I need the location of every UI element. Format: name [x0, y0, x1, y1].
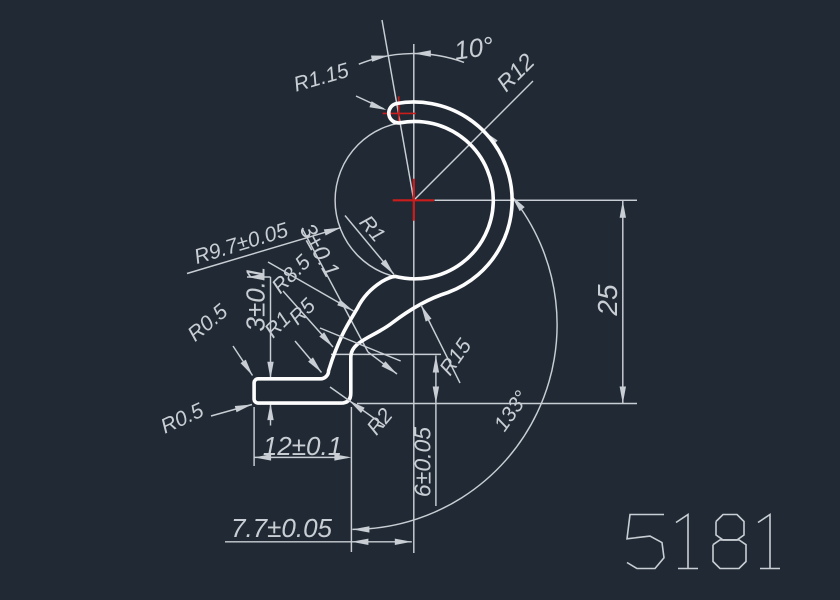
- svg-text:12±0.1: 12±0.1: [263, 431, 342, 461]
- svg-text:3±0.1: 3±0.1: [241, 267, 271, 332]
- svg-text:10°: 10°: [452, 30, 495, 65]
- svg-text:25: 25: [592, 284, 623, 317]
- svg-text:6±0.05: 6±0.05: [410, 427, 436, 497]
- svg-text:7.7±0.05: 7.7±0.05: [231, 513, 333, 543]
